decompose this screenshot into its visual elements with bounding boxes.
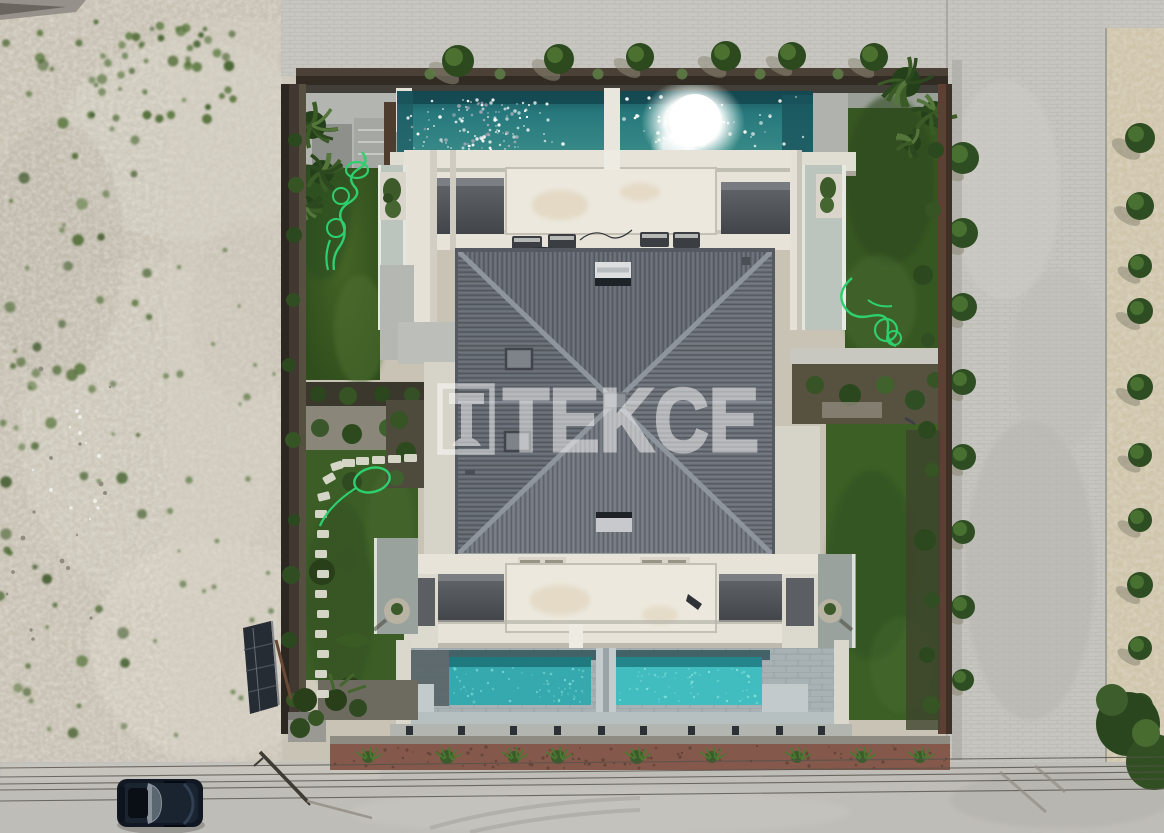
svg-text:TEKCE: TEKCE [503,371,759,471]
